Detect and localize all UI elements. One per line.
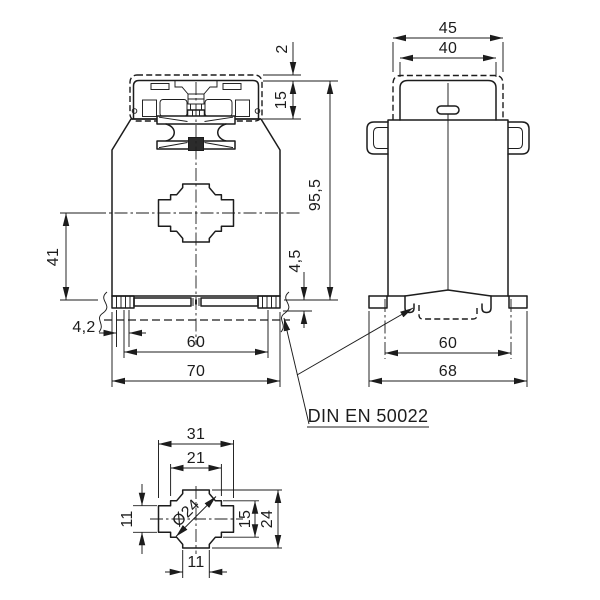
terminal-window-left xyxy=(151,84,169,90)
dim-detail-arm-width: 11 xyxy=(187,554,204,571)
dim-clip-depth: 4,5 xyxy=(287,249,304,272)
mounting-ear-left xyxy=(367,122,388,154)
terminal-window-right xyxy=(223,84,241,90)
front-base xyxy=(99,292,290,332)
dim-lip-width: 4,2 xyxy=(72,319,95,336)
front-foot-left xyxy=(112,296,134,308)
din-rail-note: DIN EN 50022 xyxy=(284,308,429,427)
break-line-left xyxy=(99,292,107,332)
technical-drawing-page: 2 15 95,5 4,5 41 4,2 60 xyxy=(0,0,600,600)
dim-overall-width: 70 xyxy=(187,363,205,380)
rail-bar-right xyxy=(201,298,258,306)
dim-detail-inner-width: 21 xyxy=(187,450,205,467)
dim-cap-inner-width: 40 xyxy=(439,40,457,57)
dim-base-width: 68 xyxy=(439,363,457,380)
front-view: 2 15 95,5 4,5 41 4,2 60 xyxy=(45,42,338,387)
technical-drawing: 2 15 95,5 4,5 41 4,2 60 xyxy=(0,0,600,600)
cap-slot xyxy=(437,106,459,114)
side-din-rail-dashed xyxy=(419,305,477,319)
dim-side-rail-span: 60 xyxy=(439,335,457,352)
side-view: 45 40 60 68 xyxy=(367,20,529,387)
rail-bar-left xyxy=(134,298,191,306)
terminal-slot-outer-right xyxy=(236,100,250,117)
note-standard: DIN EN 50022 xyxy=(308,406,429,426)
dim-detail-arm-height: 11 xyxy=(119,510,136,527)
dim-detail-outer-height: 24 xyxy=(259,510,276,528)
dim-cover-offset: 2 xyxy=(274,44,291,53)
detail-dimensions: 31 21 Ø24 11 15 24 11 xyxy=(119,426,282,578)
terminal-slot-left xyxy=(160,100,187,117)
dim-cap-outer-width: 45 xyxy=(439,20,457,37)
dim-detail-outer-width: 31 xyxy=(187,426,205,443)
mounting-ear-right xyxy=(508,122,529,154)
terminal-slot-outer-left xyxy=(143,100,157,117)
dim-terminal-height: 15 xyxy=(273,91,290,109)
break-line-right xyxy=(281,292,289,332)
front-foot-right xyxy=(258,296,280,308)
dim-front-rail-span: 60 xyxy=(187,334,205,351)
dim-total-height: 95,5 xyxy=(307,179,324,211)
leader-side xyxy=(297,308,413,375)
leader-front xyxy=(284,318,309,424)
detail-view: 31 21 Ø24 11 15 24 11 xyxy=(119,426,282,578)
dim-center-height: 41 xyxy=(45,248,62,266)
side-base xyxy=(369,290,527,319)
terminal-slot-right xyxy=(205,100,232,117)
dim-detail-inner-height: 15 xyxy=(237,510,254,528)
